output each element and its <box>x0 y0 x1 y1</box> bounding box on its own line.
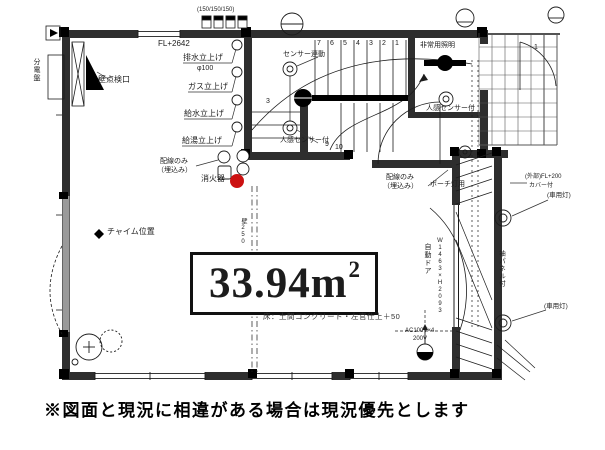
fl-level-label: FL+2642 <box>158 40 190 48</box>
window-bottom-3 <box>350 372 408 380</box>
stair-number-side: 3 <box>266 98 270 105</box>
tile-porch-grid <box>479 33 560 145</box>
drain-riser-label: 排水立上げ <box>183 54 223 62</box>
bottom-left-equipment <box>72 330 122 365</box>
stair-number: 7 <box>317 40 321 47</box>
gas-riser-label: ガス立上げ <box>188 83 228 91</box>
wiring-only-label-1: 配線のみ <box>160 158 188 165</box>
corner-details <box>46 26 104 310</box>
entry-bottom-wall <box>408 112 482 118</box>
outlet-label-2: 200V <box>413 336 427 342</box>
sensor-light-hall <box>439 92 453 106</box>
floor-plan-drawing <box>0 0 605 450</box>
left-swing-arc <box>50 246 62 334</box>
chime-label: チャイム位置 <box>107 228 155 236</box>
motion-sensor-stair-label: 人感センサー付 <box>280 137 329 144</box>
ceiling-light-label: 非常用照明 <box>420 42 455 49</box>
fire-extinguisher-label: 消火器 <box>201 175 225 183</box>
handrail-bar <box>312 95 408 101</box>
stair-bottom-wall <box>244 152 350 160</box>
window-bottom-2 <box>252 372 332 380</box>
outlet-label-1: AC100V×4 <box>405 328 434 334</box>
auto-door-label: 自動ドア <box>424 243 431 275</box>
stair-arrowhead <box>419 74 428 82</box>
porch-door-arc <box>520 42 556 86</box>
left-wall-gray-shutter <box>63 196 70 332</box>
porch-door-gap <box>480 44 488 90</box>
wiring-symbol-circle <box>218 151 230 163</box>
disclaimer-note: ※図面と現況に相違がある場合は現況優先とします <box>44 396 470 421</box>
motion-sensor-hall-label: 人感センサー付 <box>426 105 475 112</box>
stair-number: 1 <box>395 40 399 47</box>
stair-number: 3 <box>369 40 373 47</box>
auto-door-size-label: W1463×H2093 <box>437 238 443 315</box>
floor-area-box: 33.94m2 <box>190 252 378 315</box>
stair-number: 2 <box>382 40 386 47</box>
stair-handrail <box>294 89 408 107</box>
wall-access-triangle <box>86 55 104 90</box>
stair-number: 10 <box>335 144 343 151</box>
porch-light-label: ポーチ灯用 <box>430 181 465 188</box>
meter-note-label: (150/150/150) <box>197 7 234 13</box>
wiring-only-label-2: （埋込み） <box>157 167 192 174</box>
stair-sweep-curve <box>252 59 472 130</box>
stair-number: 9 <box>325 141 329 148</box>
tile-note-label-2: カバー付 <box>529 183 553 189</box>
vent-fan-top-right-2 <box>548 7 564 23</box>
window-bottom-1 <box>95 372 205 380</box>
vent-fan-top-right-1 <box>456 9 474 27</box>
switch-symbol-1 <box>237 150 249 162</box>
floor-plan-page: (150/150/150) FL+2642 排水立上げ φ100 ガス立上げ 給… <box>0 0 605 450</box>
floor-area-unit: m <box>311 259 348 308</box>
car-light-bottom-label: (車用灯) <box>544 304 568 311</box>
chime-diamond-marker <box>94 229 104 239</box>
fire-extinguisher-dot <box>230 174 244 188</box>
meter-boxes <box>202 16 247 28</box>
hall-bottom-wall <box>372 160 455 168</box>
hot-water-riser-label: 給湯立上げ <box>182 137 222 145</box>
hall-ceiling-light <box>424 55 466 71</box>
tile-grid-number: 1 <box>534 44 538 51</box>
car-light-top-label: (車用灯) <box>547 193 571 200</box>
stair-left-wall <box>244 30 252 160</box>
stair-number: 6 <box>330 40 334 47</box>
window-top-1 <box>138 30 180 38</box>
wall-thickness-label: 壁250 <box>240 218 246 246</box>
stair-number: 5 <box>343 40 347 47</box>
side-panel-label: 袖パネル付 <box>497 250 504 288</box>
floor-area-value: 33.94 <box>209 259 311 308</box>
top-wall <box>62 30 488 38</box>
wiring-porch-label-2: （埋込み） <box>383 183 418 190</box>
stair-number: 4 <box>356 40 360 47</box>
tile-note-label-1: (外部)FL+200 <box>525 174 562 180</box>
switch-symbol-2 <box>237 163 249 175</box>
sensor-light-stair-top <box>283 62 297 76</box>
panel-board-label: 分電盤 <box>33 58 40 82</box>
sensor-light-stair-bottom <box>283 121 297 135</box>
sensor-linked-label: センサー連動 <box>283 51 325 58</box>
floor-finish-note: 床：土間コンクリート・左官仕上＋50 <box>263 313 400 321</box>
entry-left-wall <box>408 38 415 118</box>
panel-board-box <box>48 55 64 99</box>
wall-access-label: 壁点検口 <box>98 76 130 84</box>
wiring-porch-label-1: 配線のみ <box>386 174 414 181</box>
stair-inner-wall <box>300 100 308 158</box>
auto-door-arc <box>430 208 467 330</box>
drain-diameter-label: φ100 <box>197 65 213 72</box>
water-riser-label: 給水立上げ <box>184 110 224 118</box>
floor-area-sup: 2 <box>349 257 361 283</box>
